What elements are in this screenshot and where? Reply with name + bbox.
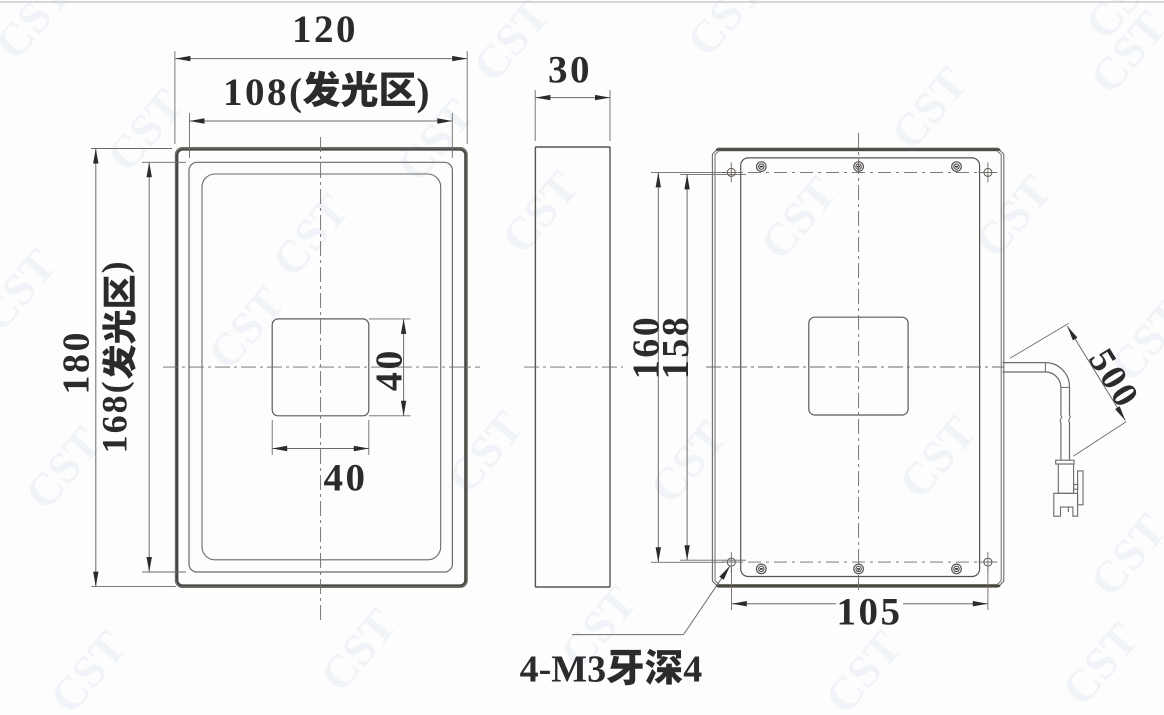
svg-text:): ) <box>417 71 430 114</box>
svg-text:4: 4 <box>683 649 702 691</box>
svg-text:168(: 168( <box>95 379 135 453</box>
svg-text:30: 30 <box>548 48 592 91</box>
svg-text:105: 105 <box>837 590 903 633</box>
svg-text:158: 158 <box>655 315 697 380</box>
svg-text:180: 180 <box>56 330 98 395</box>
svg-text:108(: 108( <box>223 71 305 114</box>
svg-text:120: 120 <box>292 8 358 51</box>
svg-text:4-M3: 4-M3 <box>520 649 607 691</box>
svg-text:): ) <box>95 261 135 273</box>
svg-text:40: 40 <box>368 348 410 391</box>
svg-text:40: 40 <box>324 456 368 499</box>
